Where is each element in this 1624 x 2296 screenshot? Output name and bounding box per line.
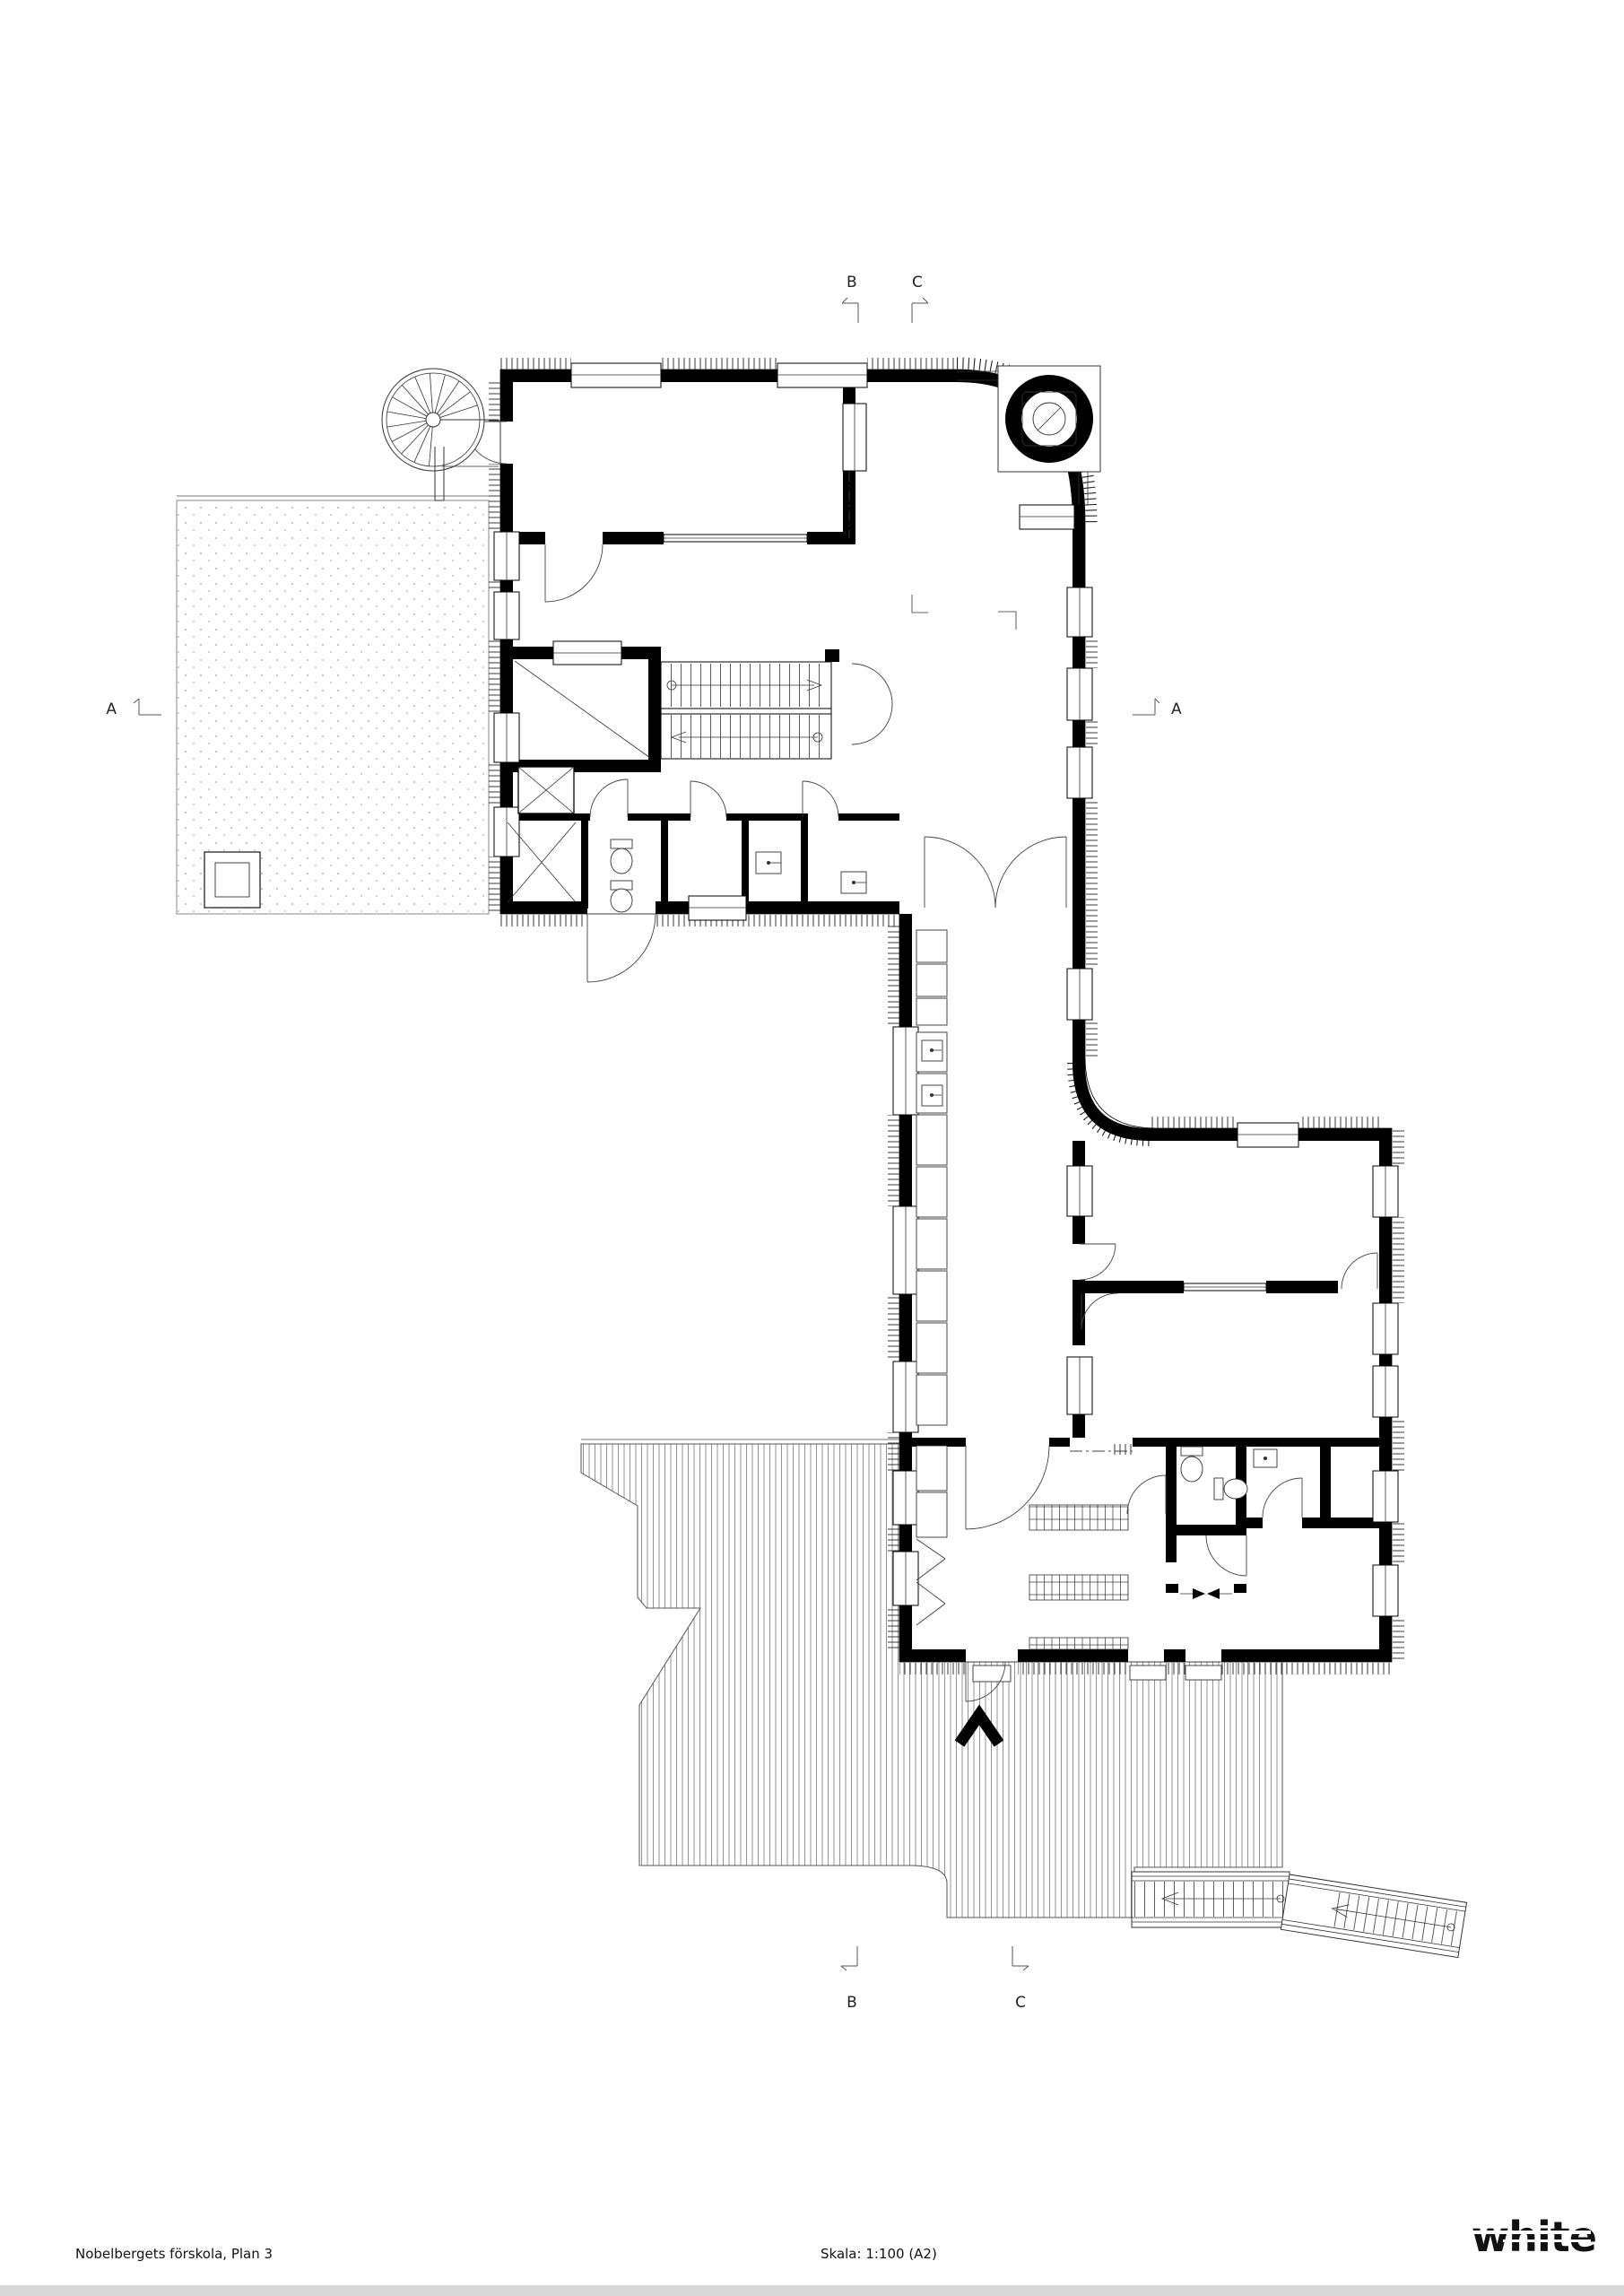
architect-logo: white (1472, 2213, 1596, 2261)
floor-plan-svg: B C A A B C Nobelbergets förskola, Plan … (0, 0, 1624, 2296)
drawing-sheet: B C A A B C Nobelbergets förskola, Plan … (0, 0, 1624, 2296)
section-marker-bottom-b (841, 1946, 857, 1970)
logo-cut-stripe (1503, 2239, 1591, 2242)
corridor-cabinets (916, 930, 947, 1625)
section-marker-bottom-c (1012, 1946, 1029, 1970)
exterior-ramp (1132, 1872, 1467, 1958)
section-marker-top-b (842, 298, 858, 323)
section-marker-right-a (1133, 699, 1159, 715)
label-section-c-bottom: C (1015, 1994, 1026, 2012)
label-section-a-right: A (1171, 700, 1182, 718)
label-section-c-top: C (912, 274, 923, 291)
label-section-b-top: B (847, 274, 857, 291)
label-section-a-left: A (106, 700, 117, 718)
section-marker-top-c (912, 298, 928, 323)
section-marker-left-a (134, 699, 161, 715)
terrace-skylight (204, 852, 260, 908)
roof-terrace (177, 496, 489, 914)
footer-bar (0, 2285, 1624, 2296)
elevator (518, 767, 574, 813)
drawing-scale: Skala: 1:100 (A2) (821, 2246, 937, 2262)
logo-cut-stripe (1472, 2231, 1591, 2234)
label-section-b-bottom: B (847, 1994, 857, 2012)
ramp-flight-1 (1132, 1872, 1290, 1927)
title-block: Nobelbergets förskola, Plan 3 Skala: 1:1… (0, 2213, 1624, 2296)
drawing-title: Nobelbergets förskola, Plan 3 (75, 2246, 273, 2262)
spiral-stair (382, 369, 499, 500)
ramp-flight-2 (1281, 1874, 1466, 1958)
